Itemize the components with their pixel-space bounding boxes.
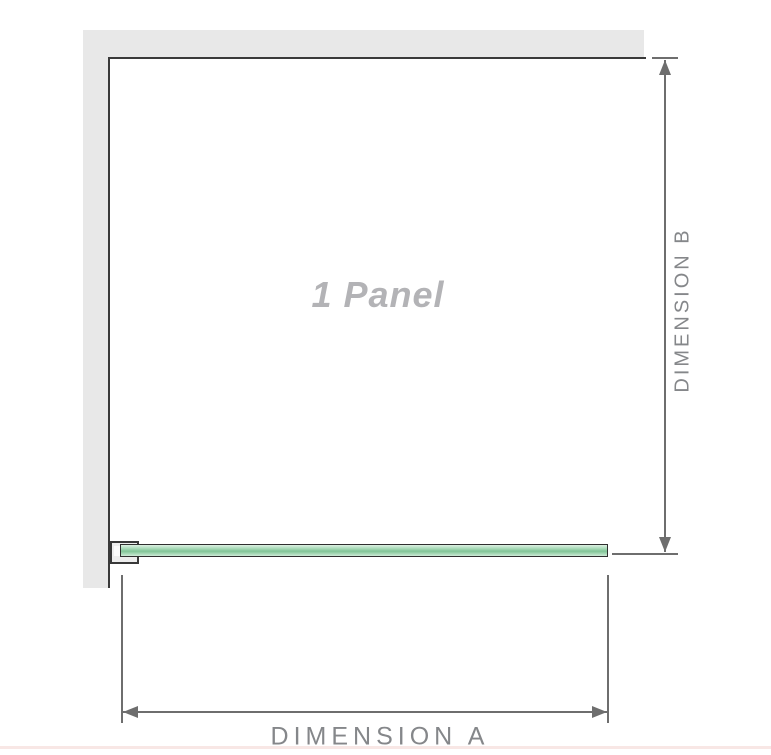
- dimension-a-left-extension-line: [121, 575, 123, 723]
- wall-left-band: [83, 30, 110, 588]
- dimension-b-label: DIMENSION B: [672, 227, 695, 392]
- dimension-b-bottom-tick: [612, 553, 678, 555]
- panel-dimension-diagram: 1 Panel DIMENSION B DIMENSION A: [0, 0, 771, 755]
- panel-outline-top-edge: [108, 57, 646, 59]
- panel-count-label: 1 Panel: [311, 274, 444, 316]
- bottom-divider-line: [0, 746, 771, 749]
- panel-outline-left-edge: [108, 57, 110, 588]
- wall-top-band: [83, 30, 644, 58]
- dimension-a-right-extension-line: [607, 575, 609, 723]
- dimension-b-line: [664, 60, 666, 552]
- arrow-down-icon: [659, 537, 671, 552]
- dimension-b-top-tick: [652, 57, 678, 59]
- glass-panel-bar: [120, 544, 608, 557]
- dimension-a-line: [122, 711, 608, 713]
- arrow-up-icon: [659, 60, 671, 75]
- arrow-right-icon: [592, 706, 607, 718]
- arrow-left-icon: [123, 706, 138, 718]
